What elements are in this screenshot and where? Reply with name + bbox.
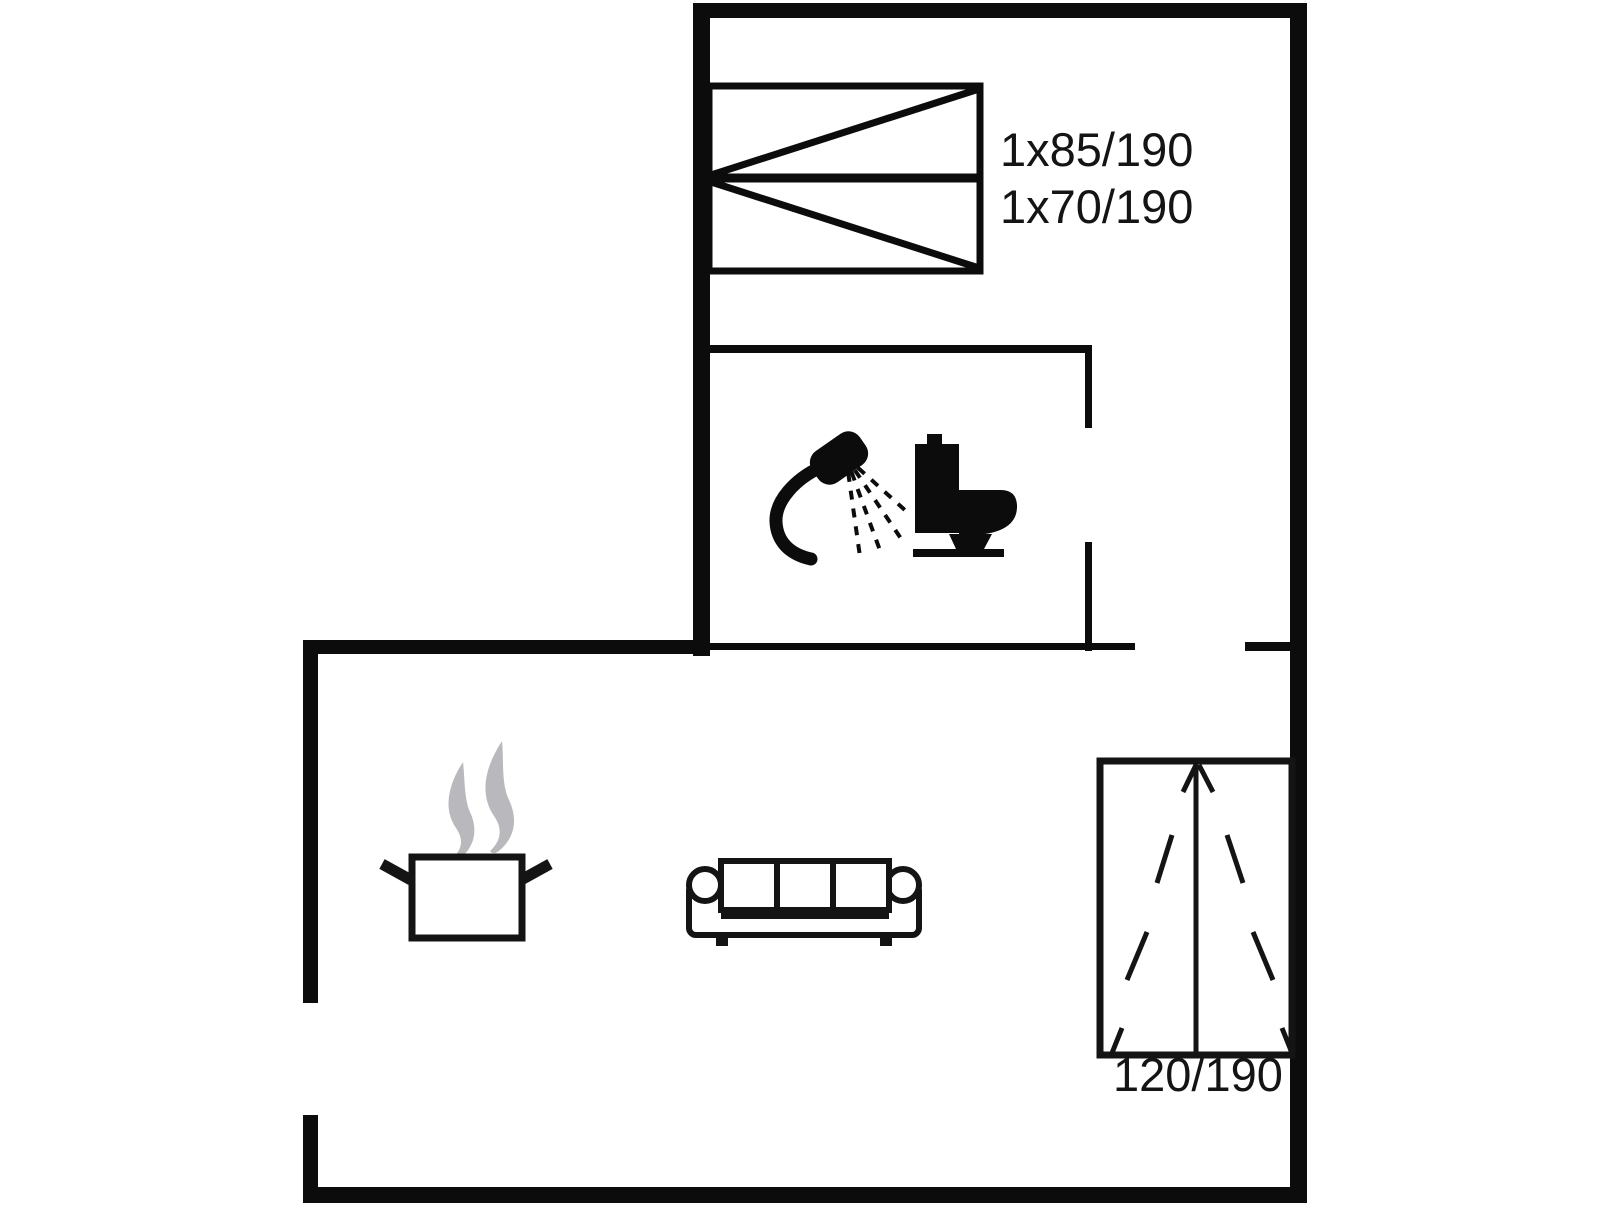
floor-plan-canvas: 1x85/190 1x70/190 120/190: [0, 0, 1606, 1205]
bunk-bed-size-label-bottom: 1x70/190: [1000, 183, 1193, 230]
bunk-bed-icon: [703, 80, 985, 276]
wall-living-top: [303, 640, 707, 654]
wall-bathroom-right-upper: [1085, 345, 1092, 428]
wall-bottom: [303, 1187, 1307, 1203]
bunk-bed-size-label-top: 1x85/190: [1000, 126, 1193, 173]
wall-bathroom-bottom: [707, 643, 1135, 650]
wall-hall-door-stub: [1245, 642, 1290, 651]
cooking-pot-icon: [370, 735, 562, 951]
wall-bathroom-right-lower: [1085, 542, 1092, 651]
wall-living-left-upper: [303, 640, 318, 1003]
shower-icon: [750, 425, 922, 571]
steam-icon: [449, 741, 515, 860]
wall-top: [693, 3, 1307, 18]
spray-droplets: [848, 468, 905, 553]
wall-bathroom-top: [707, 345, 1092, 353]
toilet-icon: [905, 430, 1027, 562]
sofa-icon: [682, 852, 928, 952]
double-bed-size-label: 120/190: [1113, 1051, 1283, 1098]
double-bed-icon: [1095, 755, 1300, 1060]
